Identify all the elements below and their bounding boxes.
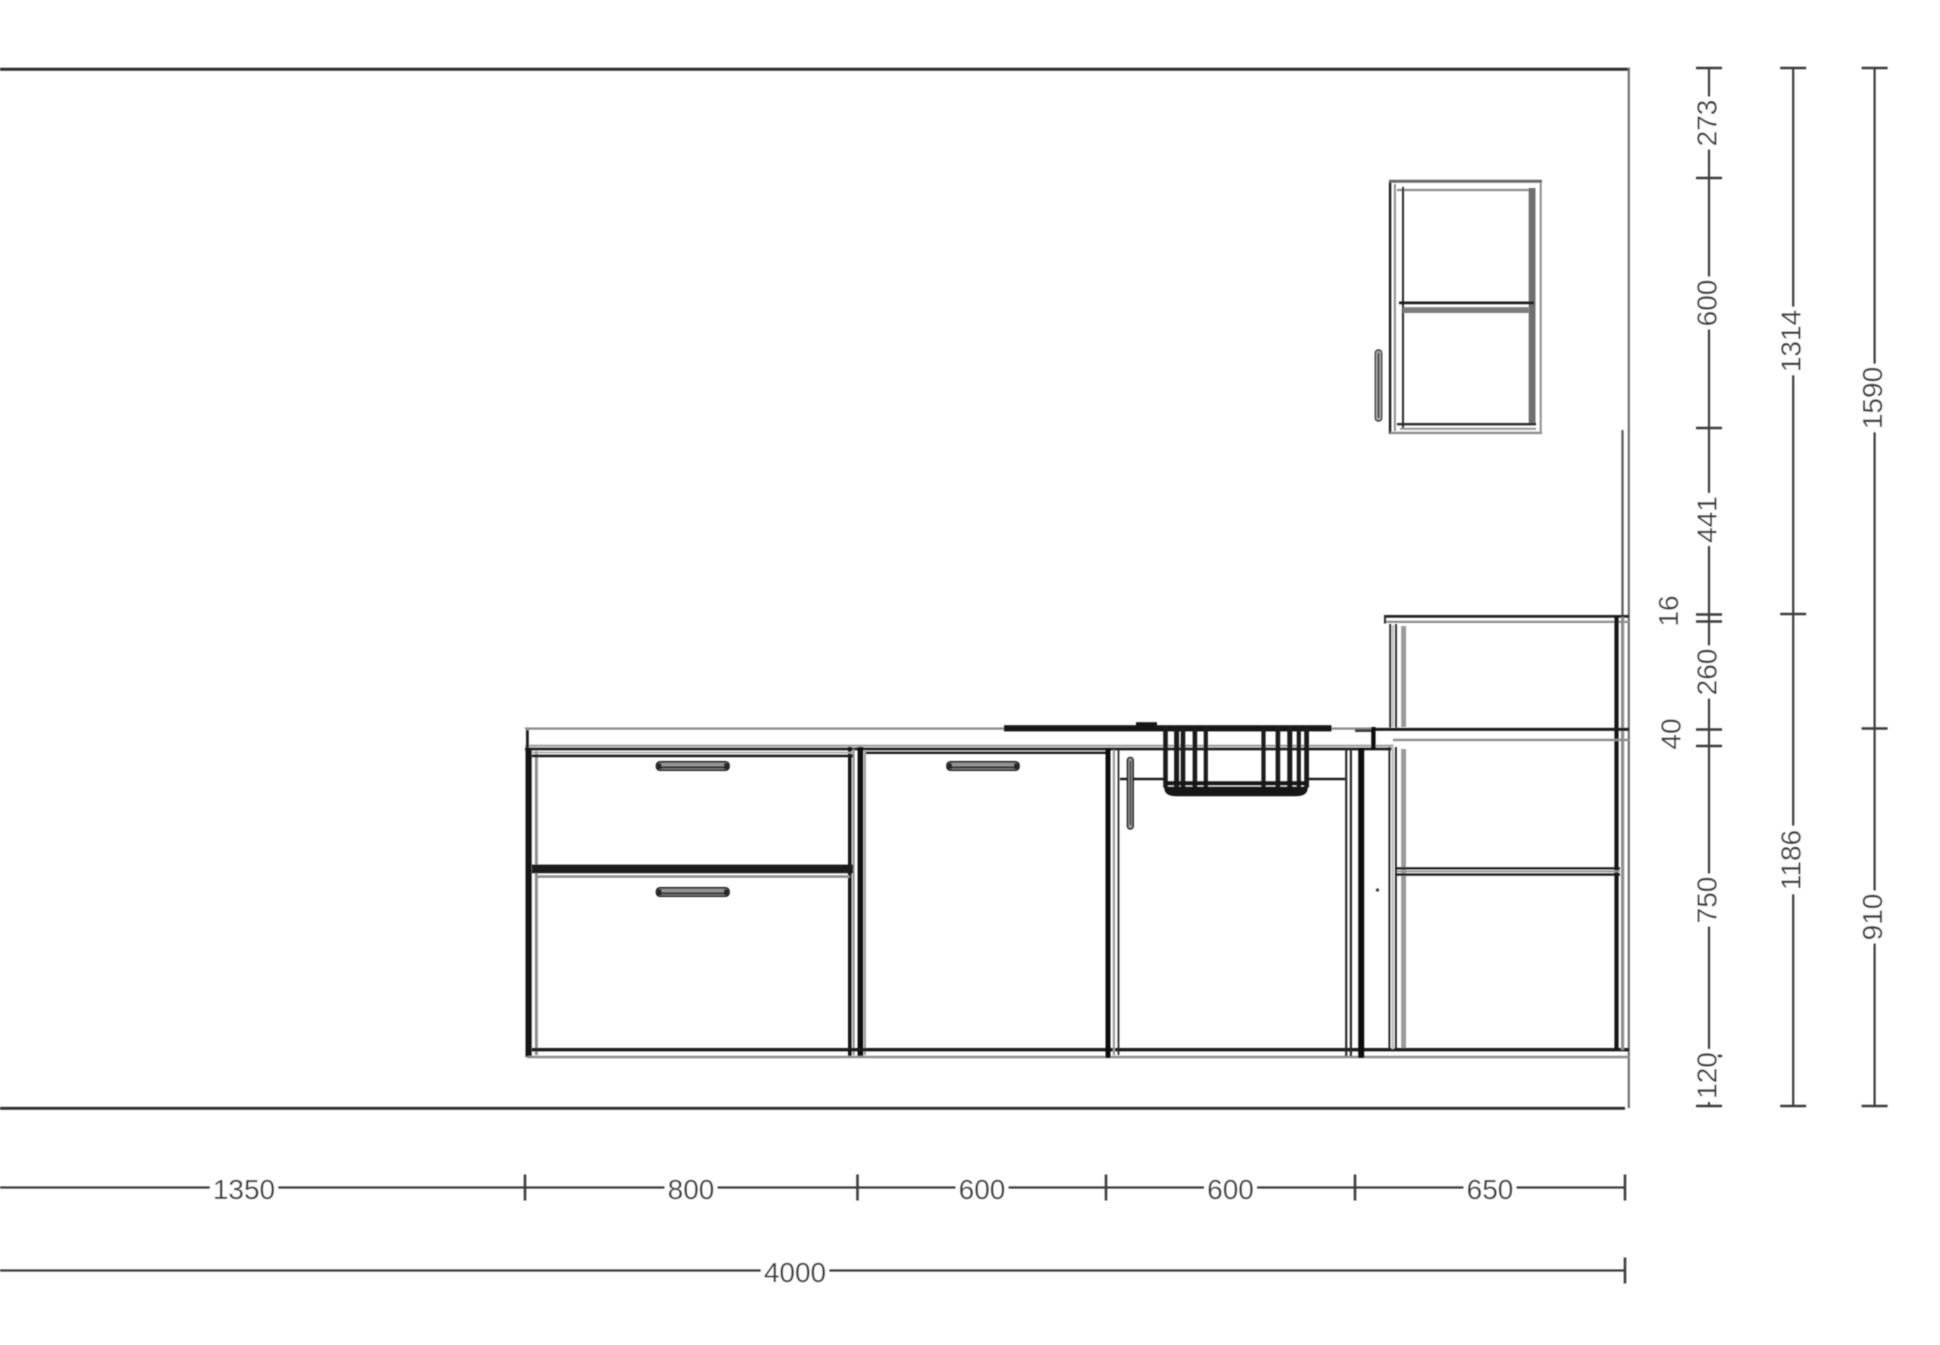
svg-text:650: 650 [1467, 1174, 1514, 1205]
svg-text:750: 750 [1692, 877, 1723, 924]
svg-text:1314: 1314 [1776, 310, 1807, 372]
svg-text:600: 600 [1207, 1174, 1254, 1205]
svg-text:16: 16 [1653, 595, 1684, 626]
svg-text:600: 600 [959, 1174, 1006, 1205]
svg-text:260: 260 [1692, 649, 1723, 696]
svg-text:1590: 1590 [1857, 367, 1888, 429]
svg-text:4000: 4000 [764, 1257, 826, 1288]
svg-text:1186: 1186 [1776, 830, 1807, 890]
svg-text:40: 40 [1656, 718, 1687, 749]
svg-text:273: 273 [1692, 100, 1723, 147]
svg-text:910: 910 [1857, 894, 1888, 941]
svg-text:800: 800 [668, 1174, 715, 1205]
svg-text:600: 600 [1692, 280, 1723, 327]
svg-text:120: 120 [1692, 1052, 1723, 1099]
svg-text:1350: 1350 [213, 1174, 275, 1205]
svg-text:441: 441 [1692, 496, 1723, 543]
